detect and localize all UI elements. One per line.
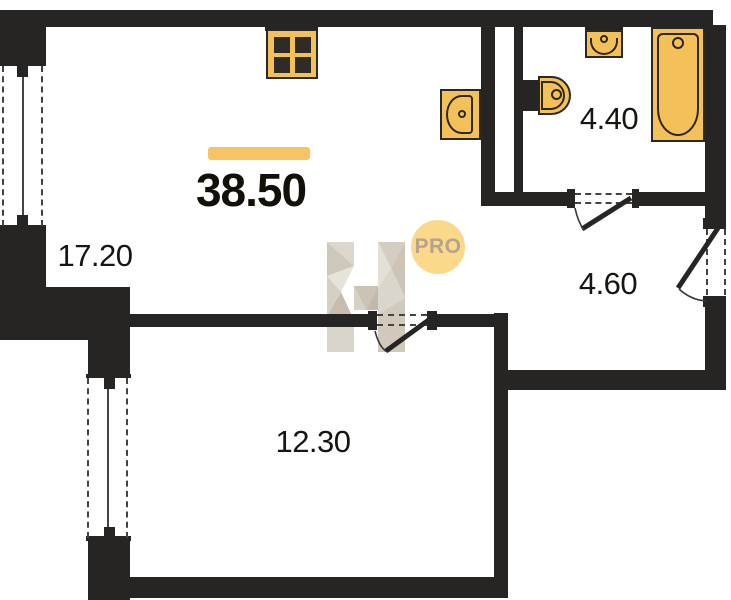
floor-plan: PRO [0,0,731,600]
entrance-door-leaf [678,228,718,288]
area-label-bedroom: 12.30 [256,424,370,460]
area-label-living-room: 17.20 [38,238,152,274]
bathroom-door-leaf [582,198,631,229]
bathroom-door-swing-arc [575,208,584,230]
bedroom-door-leaf [386,319,430,351]
area-label-bathroom: 4.40 [552,101,666,137]
total-area-label: 38.50 [186,163,316,217]
entrance-door-swing-arc [679,289,706,301]
total-area-bar [208,147,310,160]
area-label-hallway: 4.60 [551,266,665,302]
